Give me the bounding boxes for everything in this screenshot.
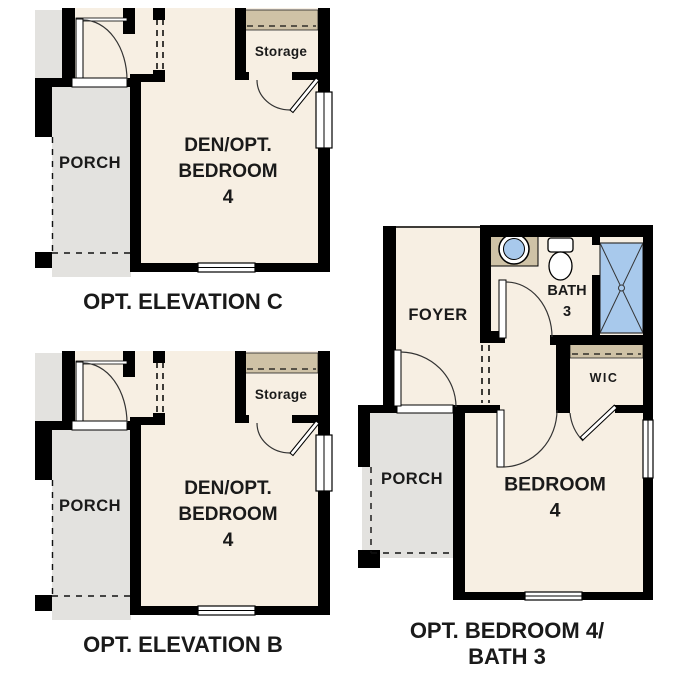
room-label-den: DEN/OPT. BEDROOM 4 (173, 133, 283, 211)
plan-caption: OPT. ELEVATION B (28, 632, 338, 658)
room-label-porch: PORCH (381, 469, 443, 491)
plan-elevation-b: PORCH DEN/OPT. BEDROOM 4 Storage OPT. EL… (28, 349, 338, 679)
plan-caption: OPT. BEDROOM 4/ BATH 3 (352, 618, 662, 670)
room-label-porch: PORCH (59, 153, 121, 175)
room-label-porch: PORCH (59, 496, 121, 518)
room-label-storage: Storage (255, 386, 307, 404)
room-label-bedroom: BEDROOM 4 (502, 472, 609, 523)
room-label-storage: Storage (255, 43, 307, 61)
plan-opt-bedroom4-bath3: FOYER BATH 3 WIC PORCH BEDROOM 4 OPT. BE… (352, 222, 662, 682)
plan-opt-bedroom4-bath3-drawing (352, 222, 662, 602)
room-label-wic: WIC (590, 370, 619, 387)
room-label-bath: BATH 3 (547, 281, 586, 323)
room-label-den: DEN/OPT. BEDROOM 4 (173, 476, 283, 554)
floor-plan-sheet: { "document": { "type": "floor-plan-shee… (0, 0, 687, 687)
room-label-foyer: FOYER (408, 305, 467, 327)
plan-elevation-c: PORCH DEN/OPT. BEDROOM 4 Storage OPT. EL… (28, 6, 338, 336)
plan-caption: OPT. ELEVATION C (28, 289, 338, 315)
